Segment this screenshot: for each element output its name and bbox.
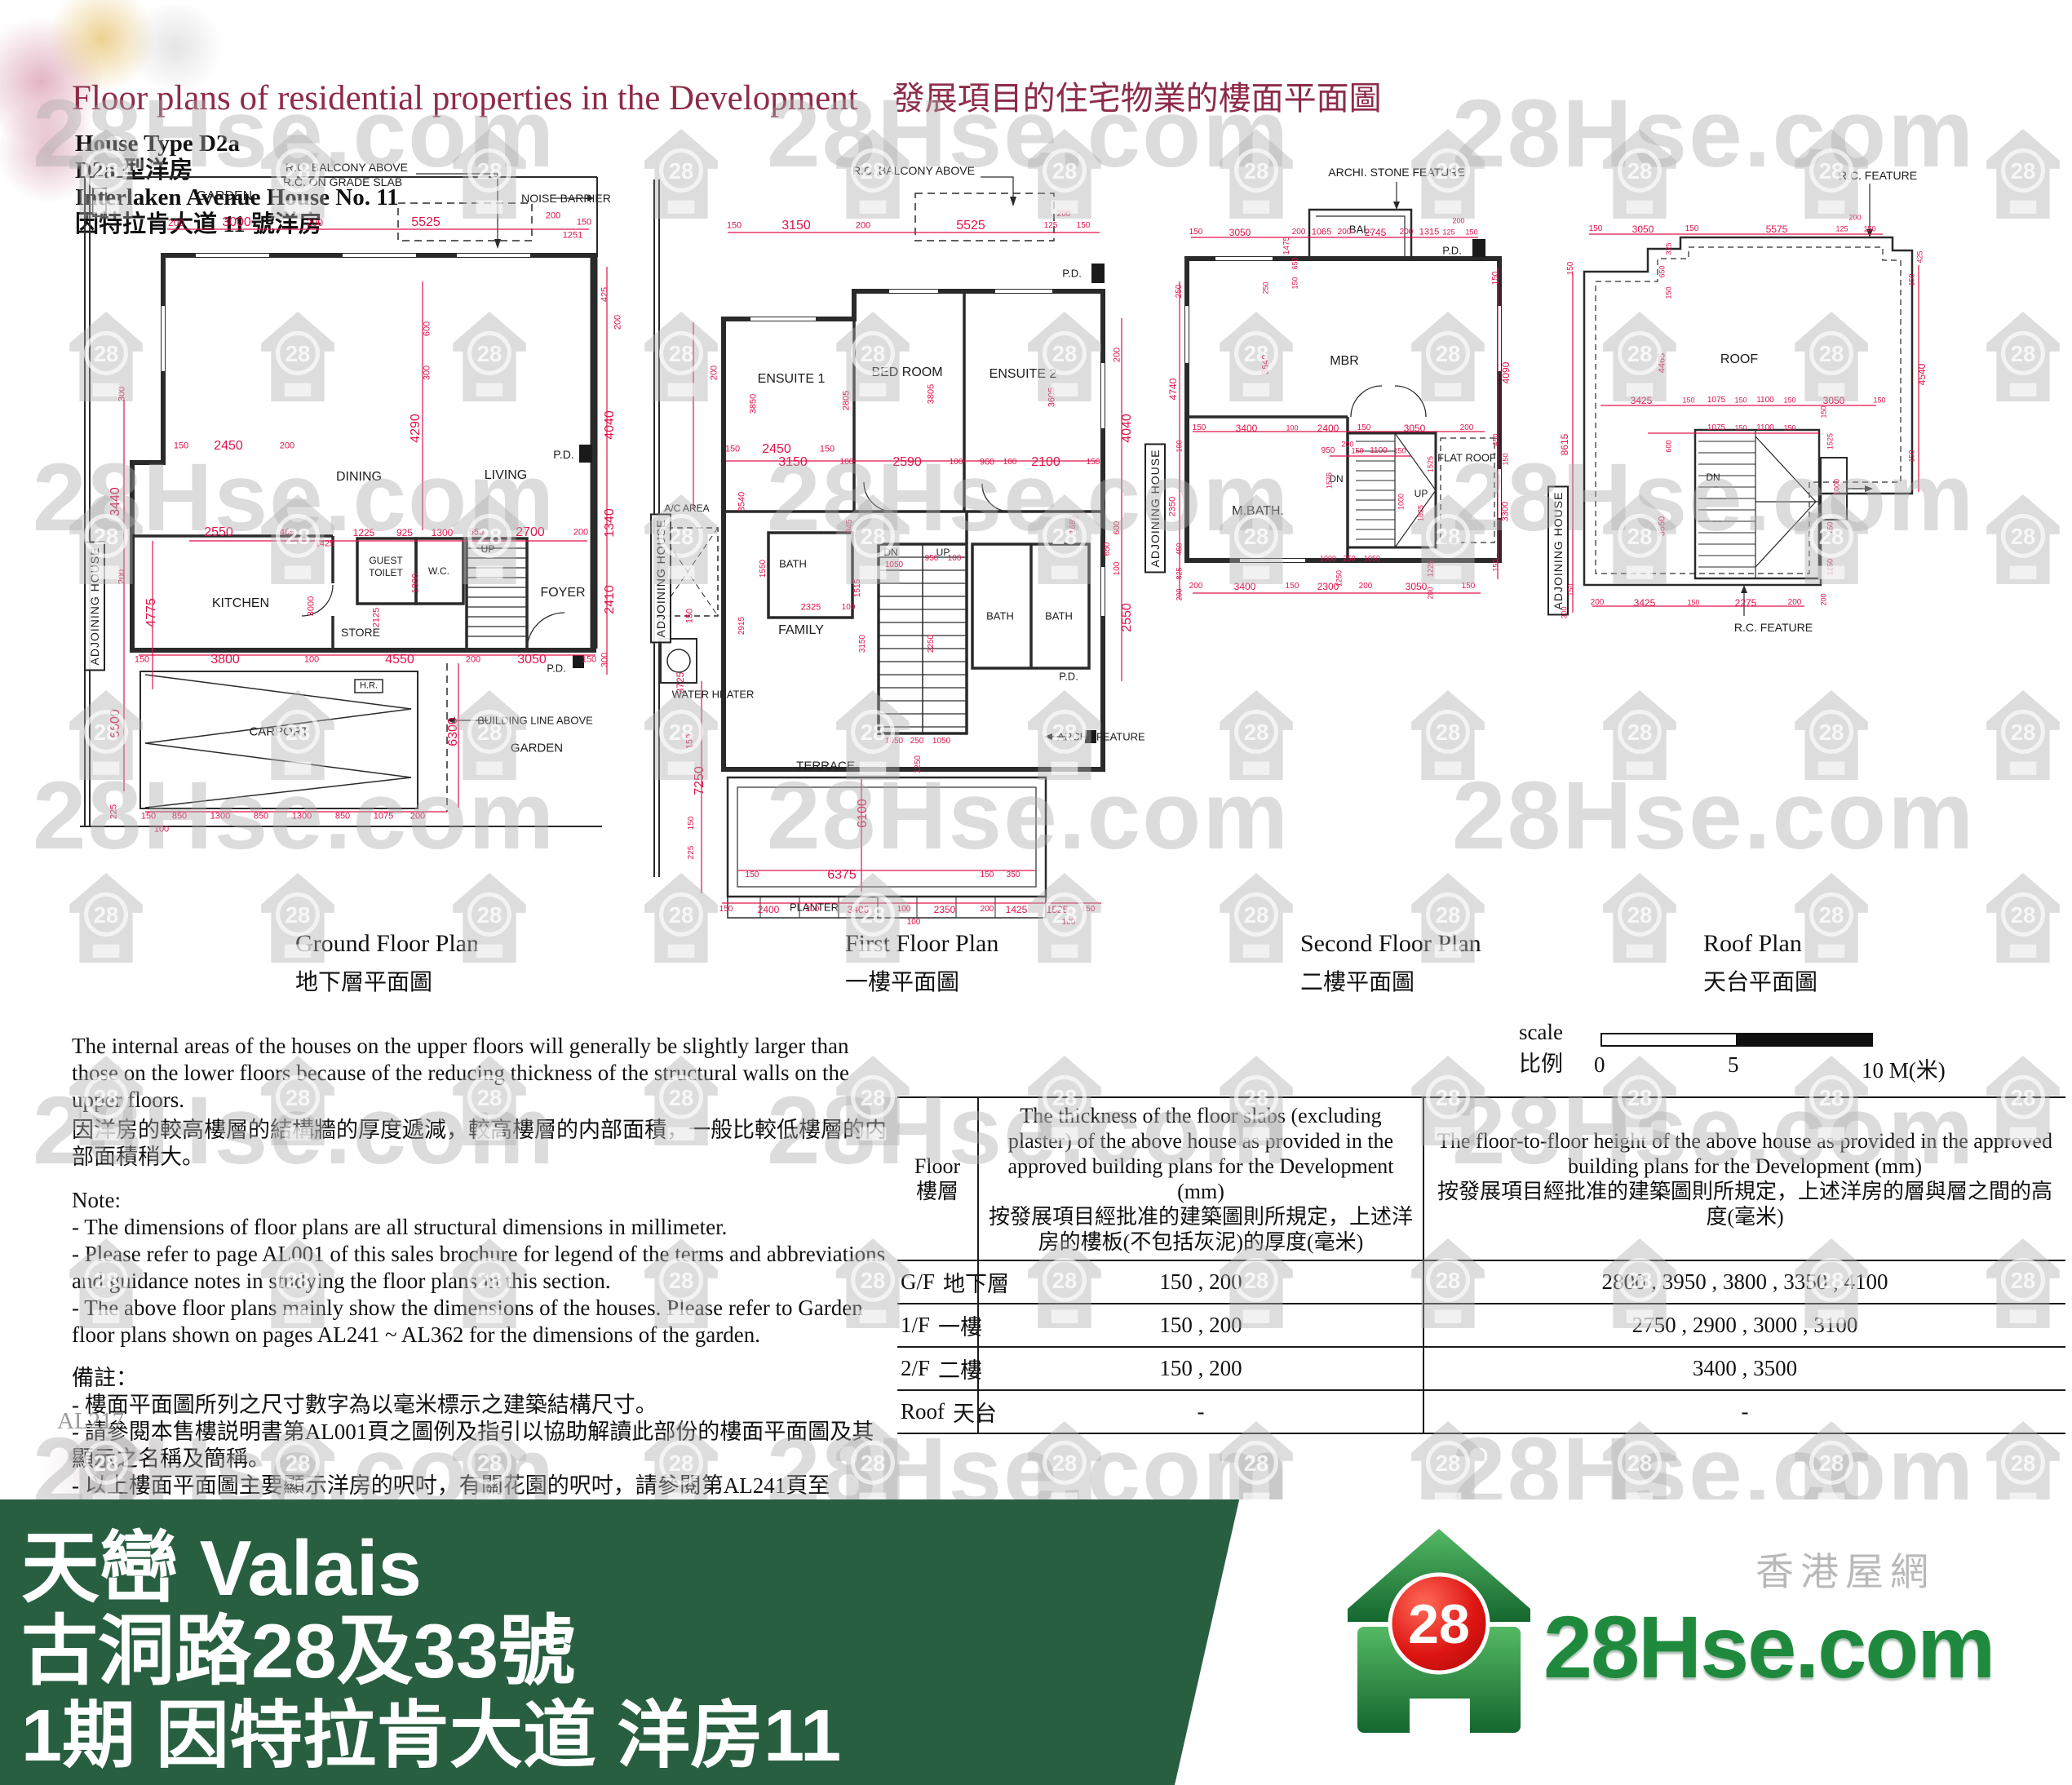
dimension-label: 1251 <box>563 232 582 241</box>
room-label: H.R. <box>360 682 378 691</box>
dimension-label: 1050 <box>885 737 903 746</box>
dimension-label: 150 <box>1821 405 1828 418</box>
dimension-label: 150 <box>1567 262 1575 276</box>
dimension-label: 5525 <box>956 219 985 233</box>
dimension-label: 200 <box>1113 348 1122 362</box>
note-label: Note: <box>72 1187 892 1214</box>
dimension-label: 6375 <box>827 869 857 882</box>
scale-bar: scale 比例 0 5 10 M(米) <box>1519 1020 2072 1085</box>
dimension-label: 200 <box>1460 424 1474 432</box>
dimension-label: 3850 <box>750 394 759 414</box>
dimension-label: 200 <box>1788 599 1802 607</box>
dimension-label: 2250 <box>928 635 936 653</box>
table-cell-height: - <box>1423 1391 2065 1434</box>
room-label: LIVING <box>485 469 527 482</box>
dimension-label: 600 <box>423 321 432 336</box>
dimension-label: 150 <box>1351 448 1363 455</box>
dimension-label: 2325 <box>801 604 821 613</box>
caption-ground-floor-en: Ground Floor Plan <box>295 930 479 958</box>
dimension-label: 550 <box>469 529 484 538</box>
dimension-label: 2550 <box>204 526 233 539</box>
dimension-label: 150 <box>1873 397 1885 405</box>
dimension-label: 3550 <box>1658 516 1667 536</box>
dimension-label: 1225 <box>353 528 375 538</box>
dimension-label: 200 <box>573 529 588 538</box>
dimension-label: 3805 <box>928 384 936 404</box>
table-header-height: The floor-to-floor height of the above h… <box>1423 1098 2065 1261</box>
dimension-label: 1100 <box>1370 447 1388 455</box>
dimension-label: 450 <box>1493 433 1500 445</box>
dimension-label: 200 <box>168 218 184 228</box>
dimension-label: 4040 <box>1121 414 1134 443</box>
dimension-label: 150 <box>1783 397 1795 405</box>
dimension-label: 3300 <box>1502 502 1511 521</box>
dimension-label: 2410 <box>604 585 617 614</box>
dimension-label: 3540 <box>738 492 747 512</box>
floor-data-table: Floor 樓層 The thickness of the floor slab… <box>897 1096 2065 1434</box>
scale-tick-0: 0 <box>1594 1052 1605 1078</box>
dimension-label: 150 <box>135 656 149 665</box>
room-label: P.D. <box>1059 671 1078 682</box>
dimension-label: 150 <box>1193 424 1206 432</box>
dimension-label: 200 <box>1338 228 1352 237</box>
brand-name: 28Hse.com <box>1543 1596 1994 1698</box>
dimension-label: 300 <box>423 365 432 380</box>
second-floor-plan: ARCHI. STONE FEATUREBAL.P.D.MBRFLAT ROOF… <box>1142 159 1534 930</box>
caption-ground-floor-zh: 地下層平面圖 <box>295 964 479 997</box>
dimension-label: 100 <box>1003 458 1017 467</box>
dimension-label: 1100 <box>1756 424 1774 432</box>
dimension-label: 100 <box>1286 425 1298 432</box>
dimension-label: 425 <box>601 287 610 302</box>
dimension-label: 1065 <box>1312 228 1331 237</box>
caption-first-floor-zh: 一樓平面圖 <box>845 964 998 997</box>
caption-first-floor: First Floor Plan 一樓平面圖 <box>845 930 998 997</box>
dimension-label: 200 <box>1428 587 1435 599</box>
room-label: GARDEN <box>511 742 563 755</box>
ground-floor-plan-drawing <box>73 159 636 930</box>
room-label: M.BATH. <box>1232 505 1284 518</box>
dimension-label: 1300 <box>432 528 454 538</box>
dimension-label: 850 <box>254 813 268 822</box>
dimension-label: 2450 <box>762 443 791 456</box>
dimension-label: 200 <box>307 218 323 228</box>
room-label: ROOF <box>1720 353 1758 366</box>
dimension-label: 1300 <box>292 813 312 822</box>
dimension-label: 6300 <box>447 717 460 746</box>
dimension-label: 150 <box>141 813 156 822</box>
dimension-label: 1250 <box>914 755 923 773</box>
svg-text:28: 28 <box>1436 1451 1461 1476</box>
room-label: UP <box>1415 489 1428 498</box>
note-item-en-3: - The above floor plans mainly show the … <box>72 1295 892 1349</box>
dimension-label: 650 <box>1104 543 1112 556</box>
dimension-label: 150 <box>686 609 695 623</box>
table-header-floor-en: Floor <box>914 1154 960 1179</box>
dimension-label: 3050 <box>517 653 547 667</box>
room-label: TERRACE <box>796 760 855 773</box>
dimension-label: 200 <box>1848 215 1861 222</box>
table-row-floor: 2/F二樓 <box>897 1348 977 1391</box>
dimension-label: 1425 <box>1006 905 1028 915</box>
svg-text:28: 28 <box>1244 1451 1269 1476</box>
dimension-label: 300 <box>601 653 610 667</box>
dimension-label: 100 <box>907 919 921 927</box>
dimension-label: 150 <box>1783 425 1795 432</box>
dimension-label: 600 <box>1113 521 1122 535</box>
room-label: CARPORT <box>249 726 308 738</box>
dimension-label: 1250 <box>1827 559 1835 575</box>
svg-text:28: 28 <box>1052 1451 1078 1476</box>
dimension-label: 100 <box>154 826 169 835</box>
dimension-label: 150 <box>1292 277 1299 289</box>
dimension-label: 150 <box>1462 582 1476 591</box>
dimension-label: 200 <box>1176 588 1184 600</box>
dimension-label: 3440 <box>109 487 122 516</box>
first-floor-plan: R.C. BALCONY ABOVEP.D.ENSUITE 1BED ROOME… <box>644 159 1142 930</box>
dimension-label: 200 <box>856 222 870 231</box>
dimension-label: 250 <box>1175 285 1184 299</box>
dimension-label: 1525 <box>1827 433 1835 450</box>
dimension-label: 1475 <box>1283 237 1291 255</box>
room-label: BED ROOM <box>871 366 942 379</box>
dimension-label: 2400 <box>758 905 780 915</box>
dimension-label: 1625 <box>1418 505 1425 521</box>
caption-second-floor-en: Second Floor Plan <box>1300 930 1481 958</box>
caption-roof-zh: 天台平面圖 <box>1703 964 1817 997</box>
dimension-label: 925 <box>396 528 413 538</box>
dimension-label: 1525 <box>1047 905 1069 915</box>
dimension-label: 225 <box>110 804 119 819</box>
note-item-en-2: - Please refer to page AL001 of this sal… <box>72 1241 892 1295</box>
dimension-label: 1075 <box>1707 424 1725 432</box>
dimension-label: 300 <box>118 387 127 401</box>
dimension-label: 150 <box>1682 397 1694 405</box>
dimension-label: 150 <box>1909 450 1916 462</box>
dimension-label: 250 <box>1263 281 1270 294</box>
dimension-label: 200 <box>806 906 820 914</box>
brand-name-zh: 香港屋網 <box>1755 1540 1935 1597</box>
table-cell-thickness: 150 , 200 <box>977 1304 1423 1348</box>
dimension-label: 200 <box>981 906 994 914</box>
ground-floor-plan: R.C. BALCONY ABOVER.C. ON GRADE SLABGARD… <box>73 159 636 930</box>
dimension-label: 3050 <box>1404 423 1426 433</box>
room-label: BATH <box>779 559 807 569</box>
room-label: BATH <box>986 611 1014 622</box>
dimension-label: 2450 <box>214 440 243 453</box>
dimension-label: 100 <box>1062 919 1076 927</box>
dimension-label: 3150 <box>778 456 808 469</box>
room-label: BATH <box>1045 611 1073 622</box>
room-label: STORE <box>341 627 380 638</box>
dimension-label: 2745 <box>1365 228 1387 237</box>
dimension-label: 3605 <box>1048 388 1057 407</box>
dimension-label: 1685 <box>1069 516 1078 534</box>
room-label: TOILET <box>369 568 403 578</box>
dimension-label: 125 <box>1835 226 1848 233</box>
dimension-label: 200 <box>466 656 480 665</box>
dimension-label: 750 <box>1827 521 1835 534</box>
dimension-label: 150 <box>820 445 835 454</box>
dimension-label: 150 <box>582 656 596 665</box>
room-label: R.C. ON GRADE SLAB <box>283 176 402 188</box>
table-header-floor: Floor 樓層 <box>897 1098 977 1261</box>
note-item-zh-2: - 請參閱本售樓説明書第AL001頁之圖例及指引以協助解讀此部份的樓面平面圖及其… <box>72 1419 892 1473</box>
dimension-label: 1800 <box>412 574 421 593</box>
table-cell-height: 2800 , 3950 , 3800 , 3350 , 4100 <box>1423 1261 2065 1304</box>
page-title-en: Floor plans of residential properties in… <box>72 79 858 117</box>
room-label: DINING <box>336 471 382 484</box>
dimension-label: 2550 <box>1121 603 1134 632</box>
room-label: ENSUITE 2 <box>990 368 1057 381</box>
dimension-label: 3150 <box>781 219 811 233</box>
dimension-label: 4540 <box>1917 364 1927 386</box>
dimension-label: 2350 <box>934 905 956 915</box>
dimension-label: 5525 <box>411 216 441 229</box>
caption-second-floor: Second Floor Plan 二樓平面圖 <box>1300 930 1481 997</box>
dimension-label: 200 <box>410 813 425 822</box>
table-header-height-zh: 按發展項目經批准的建築圖則所規定，上述洋房的層與層之間的高度(毫米) <box>1432 1179 2057 1229</box>
dimension-label: 1340 <box>604 508 617 538</box>
room-label: UP <box>481 544 495 554</box>
dimension-label: 150 <box>1087 458 1100 467</box>
dimension-label: 200 <box>1189 582 1203 591</box>
dimension-label: 1050 <box>1364 556 1380 563</box>
dimension-label: 2805 <box>843 391 852 410</box>
dimension-label: 150 <box>727 222 742 231</box>
dimension-label: 150 <box>1393 448 1406 455</box>
room-label: ADJOINING HOUSE <box>1547 486 1569 616</box>
svg-text:28: 28 <box>2011 524 2036 549</box>
dimension-label: 4740 <box>1168 379 1178 401</box>
dimension-label: 150 <box>1687 600 1699 607</box>
dimension-label: 3050 <box>1229 228 1251 237</box>
dimension-label: 960 <box>980 458 994 467</box>
room-label: P.D. <box>1062 268 1082 279</box>
dimension-label: 2100 <box>1031 456 1060 469</box>
dimension-label: 3800 <box>210 653 240 667</box>
dimension-label: 4775 <box>145 598 158 627</box>
dimension-label: 850 <box>335 813 350 822</box>
second-floor-plan-drawing <box>1142 159 1534 930</box>
scale-tick-5: 5 <box>1728 1052 1739 1078</box>
room-label: GARDEN <box>197 190 252 203</box>
dimension-label: 3725 <box>675 672 685 694</box>
caption-first-floor-en: First Floor Plan <box>845 930 998 958</box>
dimension-label: 450 <box>1176 543 1184 555</box>
caption-roof-en: Roof Plan <box>1703 930 1817 958</box>
note-item-zh-1: - 樓面平面圖所列之尺寸數字為以毫米標示之建築結構尺寸。 <box>72 1392 892 1419</box>
dimension-label: 150 <box>1734 425 1747 432</box>
dimension-label: 200 <box>1057 210 1071 219</box>
logo-badge-number: 28 <box>1408 1593 1470 1655</box>
dimension-label: 600 <box>1666 440 1673 452</box>
dimension-label: 150 <box>1493 559 1500 571</box>
room-label: P.D. <box>553 449 573 460</box>
dimension-label: 350 <box>1007 871 1021 879</box>
note-paragraph-en: The internal areas of the houses on the … <box>72 1033 892 1114</box>
dimension-label: 125 <box>1442 229 1454 237</box>
dimension-label: 1550 <box>759 560 768 578</box>
dimension-label: 8615 <box>1560 434 1569 456</box>
footer-banner: 天巒 Valais 古洞路28及33號 1期 因特拉肯大道 洋房11 28 28… <box>0 1499 2072 1785</box>
room-label: DN <box>1706 472 1720 482</box>
house-type-en: House Type D2a <box>75 131 399 157</box>
dimension-label: 200 <box>711 365 719 380</box>
dimension-label: 200 <box>1292 228 1306 237</box>
dimension-label: 1075 <box>374 813 393 822</box>
dimension-label: 2590 <box>892 456 922 469</box>
dimension-label: 150 <box>1568 583 1575 596</box>
table-cell-thickness: - <box>977 1391 1423 1434</box>
dimension-label: 100 <box>948 555 962 563</box>
table-cell-height: 3400 , 3500 <box>1423 1348 2065 1391</box>
page-title-zh: 發展項目的住宅物業的樓面平面圖 <box>892 80 1382 117</box>
dimension-label: 200 <box>118 569 127 584</box>
note-paragraph-zh: 因洋房的較高樓層的結構牆的厚度遞減，較高樓層的内部面積，一般比較低樓層的内部面積… <box>72 1117 892 1171</box>
dimension-label: 325 <box>1666 242 1673 255</box>
dimension-label: 1315 <box>1419 228 1439 237</box>
dimension-label: 150 <box>1286 582 1299 591</box>
dimension-label: 200 <box>280 442 294 451</box>
dimension-label: 1100 <box>1756 396 1774 405</box>
dimension-label: 2915 <box>738 617 746 635</box>
dimension-label: 4550 <box>385 653 414 667</box>
dimension-label: 7250 <box>693 766 706 795</box>
dimension-label: 200 <box>1400 228 1414 237</box>
caption-second-floor-zh: 二樓平面圖 <box>1300 964 1481 997</box>
dimension-label: 150 <box>1666 286 1673 299</box>
svg-text:28: 28 <box>1627 1451 1653 1476</box>
dimension-label: 150 <box>1357 424 1371 432</box>
room-label: ADJOINING HOUSE <box>650 514 671 644</box>
dimension-label: 2700 <box>516 526 545 539</box>
dimension-label: 6100 <box>857 799 870 828</box>
dimension-label: 150 <box>1734 397 1747 405</box>
dimension-label: 3640 <box>1262 355 1271 374</box>
svg-text:28: 28 <box>2011 1451 2036 1476</box>
dimension-label: 3425 <box>1634 598 1656 608</box>
dimension-label: 2125 <box>373 608 382 627</box>
dimension-label: 150 <box>1589 225 1603 233</box>
room-label: R.C. FEATURE <box>1734 622 1813 633</box>
dimension-label: 150 <box>1492 272 1500 286</box>
dimension-label: 3050 <box>1632 224 1654 234</box>
room-label: R.C. BALCONY ABOVE <box>286 162 408 173</box>
scale-bar-graphic <box>1600 1033 1873 1047</box>
room-label: P.D. <box>1442 246 1462 256</box>
room-label: KITCHEN <box>212 597 269 610</box>
roof-plan-drawing <box>1550 159 2007 930</box>
dimension-label: 200 <box>1821 593 1828 605</box>
dimension-label: 150 <box>981 871 994 879</box>
dimension-label: 150 <box>1909 273 1916 286</box>
dimension-label: 6600 <box>109 709 122 738</box>
dimension-label: 650 <box>1659 265 1667 277</box>
svg-text:28: 28 <box>2011 158 2036 184</box>
dimension-label: 3400 <box>1236 423 1258 433</box>
dimension-label: 3050 <box>1823 396 1845 405</box>
dimension-label: 100 <box>304 656 319 665</box>
dimension-label: 150 <box>725 445 740 454</box>
dimension-label: 100 <box>840 458 854 467</box>
room-label: A/C AREA <box>664 503 709 513</box>
dimension-label: 3050 <box>1406 582 1428 591</box>
room-label: R.C. FEATURE <box>1839 170 1917 181</box>
svg-text:28: 28 <box>1819 1451 1844 1476</box>
dimension-label: 100 <box>1113 562 1122 576</box>
dimension-label: 1050 <box>885 561 903 569</box>
dimension-label: 3000 <box>222 216 251 229</box>
dimension-label: 100 <box>950 458 963 467</box>
dimension-label: 4465 <box>1658 353 1667 373</box>
dimension-label: 1225 <box>1428 560 1435 577</box>
dimension-label: 950 <box>925 555 939 563</box>
dimension-label: 150 <box>1685 225 1699 233</box>
dimension-label: 950 <box>1322 447 1335 455</box>
dimension-label: 850 <box>172 813 187 822</box>
table-header-thickness-en: The thickness of the floor slabs (exclud… <box>987 1103 1415 1204</box>
dimension-label: 150 <box>688 817 696 830</box>
table-cell-thickness: 150 , 200 <box>977 1261 1423 1304</box>
dimension-label: 3150 <box>859 635 867 653</box>
dimension-label: 1425 <box>315 540 334 549</box>
dimension-label: 150 <box>719 906 733 914</box>
room-label: ADJOINING HOUSE <box>84 542 105 671</box>
28hse-logo-icon: 28 <box>1344 1527 1534 1738</box>
roof-plan: R.C. FEATUREROOFDNR.C. FEATUREADJOINING … <box>1550 159 2007 930</box>
dimension-label: 425 <box>1917 250 1924 263</box>
room-label: FLAT ROOF <box>1437 453 1496 463</box>
dimension-label: 125 <box>1044 222 1058 230</box>
dimension-label: 100 <box>842 604 856 612</box>
room-label: P.D. <box>547 663 566 674</box>
table-row-floor: 1/F一樓 <box>897 1304 977 1348</box>
dimension-label: 200 <box>1452 218 1464 225</box>
room-label: ADJOINING HOUSE <box>1144 444 1166 574</box>
dimension-label: 1300 <box>210 813 230 822</box>
room-label: R.C. BALCONY ABOVE <box>852 165 975 176</box>
room-label: FAMILY <box>778 624 824 637</box>
dimension-label: 2400 <box>1317 423 1339 433</box>
dimension-label: 150 <box>1503 453 1510 465</box>
dimension-label: 100 <box>897 906 911 914</box>
notes-block: The internal areas of the houses on the … <box>72 1033 892 1526</box>
dimension-label: 150 <box>1189 228 1203 237</box>
dimension-label: 3425 <box>1631 396 1653 405</box>
dimension-label: 825 <box>1176 567 1184 579</box>
dimension-label: 200 <box>546 212 560 221</box>
dimension-label: 150 <box>746 871 759 879</box>
dimension-label: 1000 <box>1398 494 1406 510</box>
dimension-label: 3000 <box>308 596 317 616</box>
dimension-label: 3400 <box>1234 582 1256 591</box>
dimension-label: 1525 <box>1428 456 1435 472</box>
table-header-floor-zh: 樓層 <box>916 1179 959 1204</box>
dimension-label: 150 <box>1465 229 1477 237</box>
table-cell-thickness: 150 , 200 <box>977 1348 1423 1391</box>
room-label: ARCHI. STONE FEATURE <box>1328 166 1465 178</box>
scale-label-en: scale <box>1519 1020 1563 1045</box>
table-header-thickness: The thickness of the floor slabs (exclud… <box>977 1098 1423 1261</box>
scale-tick-10: 10 M(米) <box>1862 1052 1946 1084</box>
room-label: ENSUITE 1 <box>758 373 826 386</box>
dimension-label: 1050 <box>932 737 950 746</box>
dimension-label: 200 <box>1359 582 1373 591</box>
table-header-thickness-zh: 按發展項目經批准的建築圖則所規定，上述洋房的樓板(不包括灰泥)的厚度(毫米) <box>987 1204 1415 1255</box>
room-label: DN <box>883 547 897 557</box>
dimension-label: 2275 <box>1735 598 1757 608</box>
